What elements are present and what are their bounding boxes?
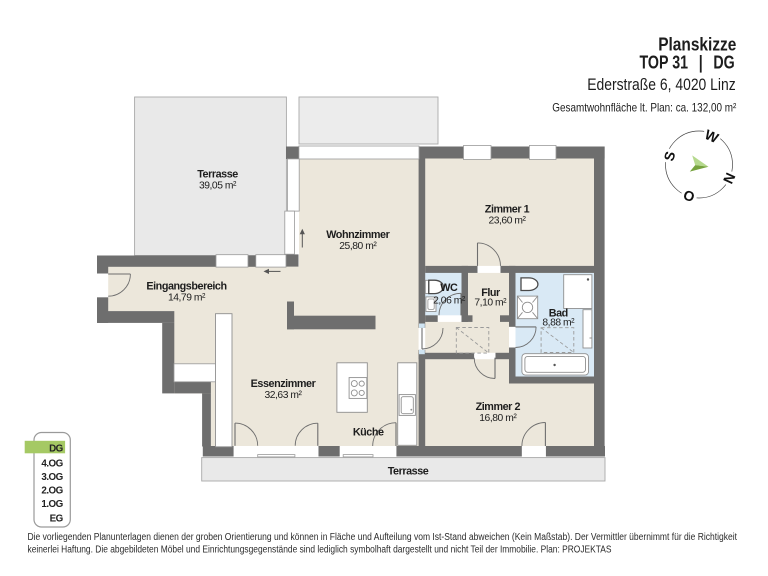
svg-text:Die vorliegenden Planunterlage: Die vorliegenden Planunterlagen dienen d… — [28, 532, 738, 543]
svg-text:8,88 m²: 8,88 m² — [542, 318, 575, 329]
svg-text:39,05 m²: 39,05 m² — [199, 181, 237, 192]
svg-text:Essenzimmer: Essenzimmer — [251, 378, 317, 390]
svg-text:32,63 m²: 32,63 m² — [264, 390, 302, 401]
svg-text:WC: WC — [440, 282, 458, 294]
svg-text:7,10 m²: 7,10 m² — [474, 297, 507, 308]
svg-text:N: N — [720, 170, 739, 186]
svg-text:S: S — [660, 149, 678, 162]
svg-text:Wohnzimmer: Wohnzimmer — [326, 229, 390, 241]
svg-text:2,06 m²: 2,06 m² — [433, 295, 466, 306]
svg-text:25,80 m²: 25,80 m² — [339, 241, 377, 252]
svg-text:4.OG: 4.OG — [41, 458, 63, 469]
svg-text:Ederstraße 6, 4020 Linz: Ederstraße 6, 4020 Linz — [587, 75, 736, 94]
svg-text:Gesamtwohnfläche lt. Plan: ca.: Gesamtwohnfläche lt. Plan: ca. 132,00 m² — [552, 101, 736, 115]
svg-text:Zimmer 2: Zimmer 2 — [476, 401, 521, 413]
svg-text:Eingangsbereich: Eingangsbereich — [146, 281, 226, 293]
svg-text:Zimmer 1: Zimmer 1 — [485, 204, 530, 216]
svg-text:2.OG: 2.OG — [41, 485, 63, 496]
svg-text:EG: EG — [50, 514, 64, 525]
svg-text:Terrasse: Terrasse — [197, 169, 238, 181]
svg-text:DG: DG — [49, 443, 64, 454]
svg-text:W: W — [702, 126, 721, 146]
svg-text:14,79 m²: 14,79 m² — [168, 293, 206, 304]
svg-text:23,60 m²: 23,60 m² — [488, 216, 526, 227]
svg-text:16,80 m²: 16,80 m² — [479, 413, 517, 424]
svg-text:O: O — [681, 187, 696, 206]
svg-text:keinerlei Haftung. Die abgebil: keinerlei Haftung. Die abgebildeten Möbe… — [28, 545, 612, 556]
svg-text:TOP 31 | DG: TOP 31 | DG — [640, 52, 735, 72]
svg-text:Terrasse: Terrasse — [388, 465, 429, 477]
svg-text:3.OG: 3.OG — [41, 472, 63, 483]
svg-text:1.OG: 1.OG — [41, 499, 63, 510]
svg-text:Küche: Küche — [353, 427, 384, 439]
